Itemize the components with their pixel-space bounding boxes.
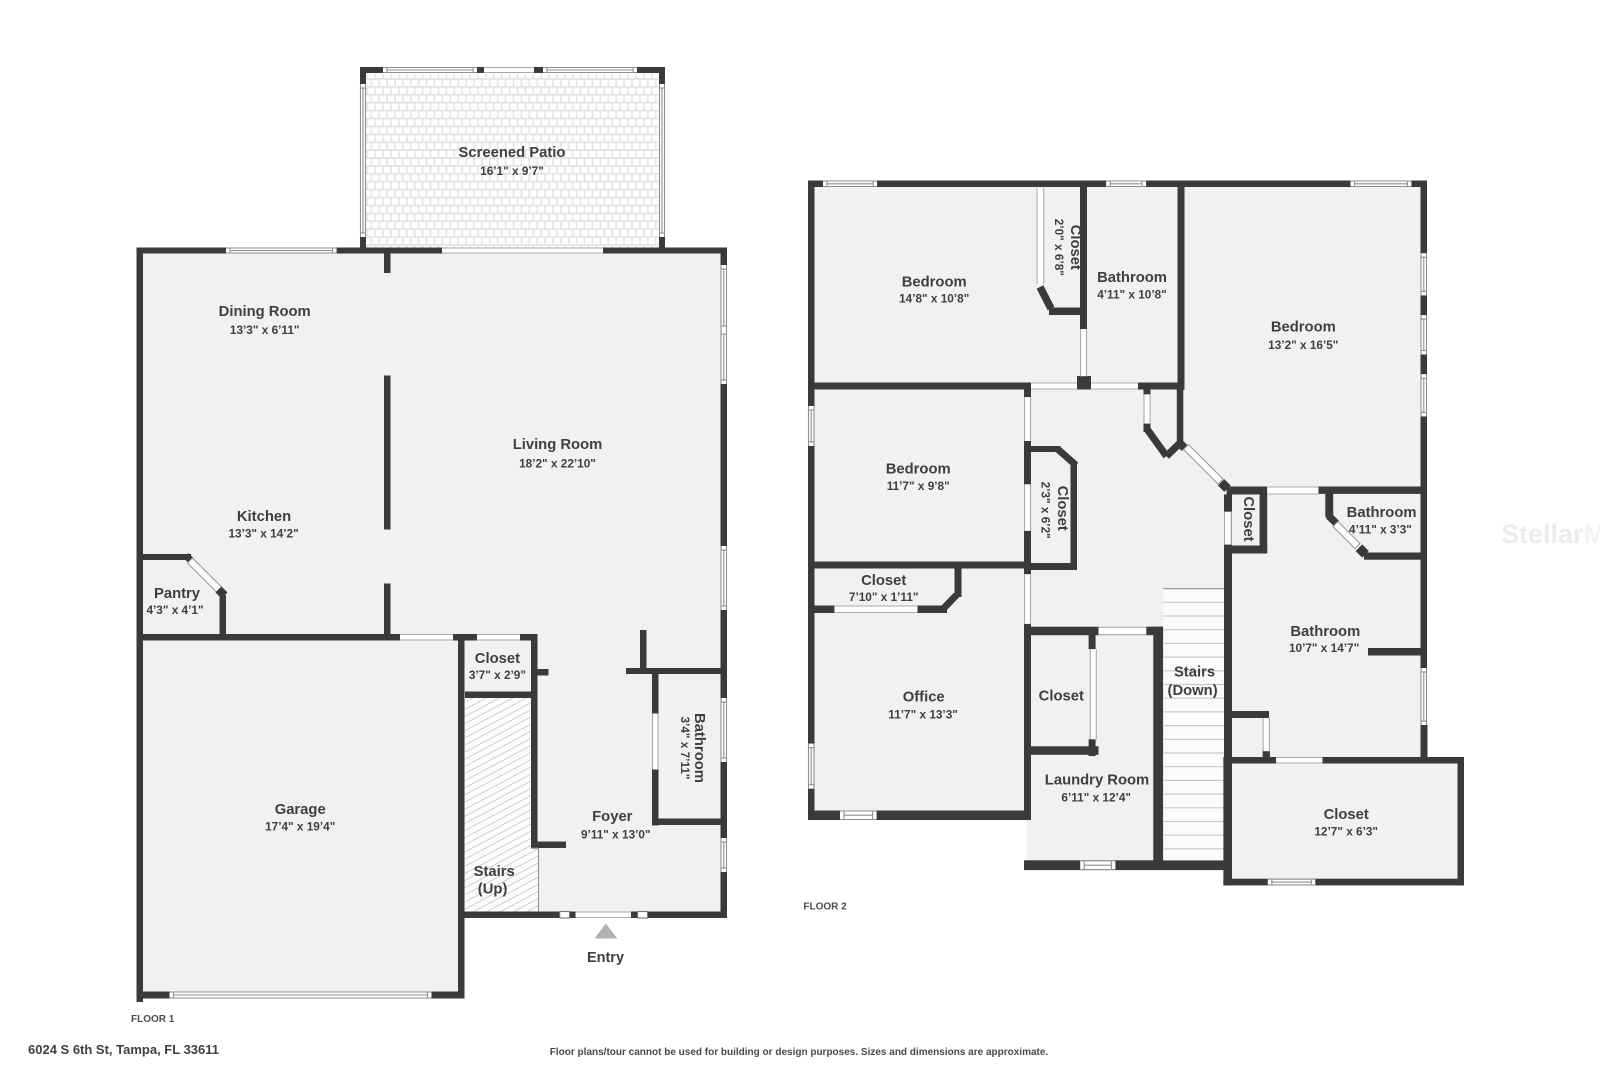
- svg-text:Closet: Closet: [1054, 486, 1070, 531]
- svg-text:6’11" x 12’4": 6’11" x 12’4": [1061, 791, 1131, 805]
- svg-text:Stairs: Stairs: [1174, 665, 1215, 681]
- svg-text:18’2" x 22’10": 18’2" x 22’10": [519, 457, 596, 471]
- svg-text:Stairs: Stairs: [474, 864, 515, 880]
- svg-text:(Up): (Up): [478, 882, 508, 898]
- svg-text:16’1" x 9’7": 16’1" x 9’7": [480, 164, 544, 178]
- svg-text:Dining Room: Dining Room: [219, 304, 311, 320]
- svg-text:2’0" x 6’8": 2’0" x 6’8": [1052, 219, 1066, 276]
- svg-text:Bedroom: Bedroom: [886, 462, 951, 478]
- svg-text:Pantry: Pantry: [154, 586, 201, 602]
- svg-text:Bathroom: Bathroom: [1347, 505, 1417, 521]
- svg-text:Closet: Closet: [861, 573, 906, 589]
- svg-text:9’11" x 13’0": 9’11" x 13’0": [581, 828, 651, 842]
- svg-text:Closet: Closet: [1039, 689, 1084, 705]
- svg-text:2’3" x 6’2": 2’3" x 6’2": [1039, 482, 1053, 539]
- svg-text:13’3" x 6’11": 13’3" x 6’11": [230, 323, 300, 337]
- svg-text:Kitchen: Kitchen: [237, 509, 291, 525]
- svg-text:13’3" x 14’2": 13’3" x 14’2": [228, 527, 298, 541]
- svg-text:(Down): (Down): [1168, 683, 1218, 699]
- svg-text:Living Room: Living Room: [513, 437, 603, 453]
- svg-text:4’11" x 10’8": 4’11" x 10’8": [1097, 288, 1167, 302]
- svg-text:17’4" x 19’4": 17’4" x 19’4": [265, 820, 335, 834]
- svg-text:Closet: Closet: [1067, 225, 1083, 270]
- svg-text:Bathroom: Bathroom: [1290, 624, 1360, 640]
- svg-text:13’2" x 16’5": 13’2" x 16’5": [1268, 338, 1338, 352]
- svg-text:Foyer: Foyer: [592, 809, 633, 825]
- svg-text:3’7" x 2’9": 3’7" x 2’9": [469, 668, 526, 682]
- svg-text:FLOOR 1: FLOOR 1: [131, 1014, 175, 1025]
- svg-text:Office: Office: [903, 690, 945, 706]
- svg-text:12’7" x 6’3": 12’7" x 6’3": [1314, 825, 1378, 839]
- svg-text:11’7" x 13’3": 11’7" x 13’3": [888, 708, 958, 722]
- svg-text:Bedroom: Bedroom: [902, 275, 967, 291]
- svg-text:Bathroom: Bathroom: [1097, 270, 1167, 286]
- svg-text:Bedroom: Bedroom: [1271, 320, 1336, 336]
- svg-text:Entry: Entry: [587, 950, 624, 966]
- svg-text:Bathroom: Bathroom: [691, 713, 707, 783]
- svg-text:Closet: Closet: [475, 651, 520, 667]
- svg-text:Closet: Closet: [1324, 807, 1369, 823]
- svg-text:14’8" x 10’8": 14’8" x 10’8": [899, 292, 969, 306]
- svg-text:4’3" x 4’1": 4’3" x 4’1": [146, 603, 203, 617]
- svg-text:4’11" x 3’3": 4’11" x 3’3": [1349, 523, 1412, 537]
- svg-text:3’4" x 7’11": 3’4" x 7’11": [678, 716, 692, 779]
- svg-text:10’7" x 14’7": 10’7" x 14’7": [1289, 641, 1359, 655]
- svg-text:Garage: Garage: [275, 802, 326, 818]
- svg-text:FLOOR 2: FLOOR 2: [803, 902, 847, 913]
- svg-text:11’7" x 9’8": 11’7" x 9’8": [887, 479, 950, 493]
- svg-text:6024 S 6th St, Tampa, FL 33611: 6024 S 6th St, Tampa, FL 33611: [28, 1042, 219, 1057]
- svg-text:Laundry Room: Laundry Room: [1045, 773, 1149, 789]
- svg-text:Closet: Closet: [1240, 496, 1256, 541]
- svg-text:7’10" x 1’11": 7’10" x 1’11": [849, 590, 919, 604]
- svg-text:StellarMLS: StellarMLS: [1501, 519, 1600, 549]
- svg-text:Floor plans/tour cannot be use: Floor plans/tour cannot be used for buil…: [550, 1047, 1049, 1058]
- svg-text:Screened Patio: Screened Patio: [459, 145, 566, 161]
